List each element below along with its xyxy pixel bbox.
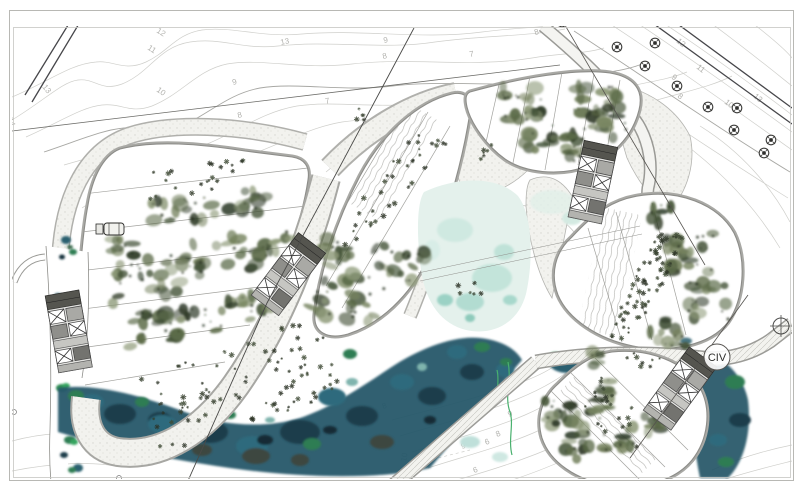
- conifer-symbol-icon: [640, 61, 650, 71]
- conifer-symbol-icon: [759, 148, 769, 158]
- site-plan-sheet: 1413121110981398778986512111310987689869…: [0, 0, 800, 492]
- section-marker-label: CIV: [708, 352, 727, 364]
- conifer-symbol-icon: [729, 125, 739, 135]
- conifer-symbol-icon: [703, 102, 713, 112]
- section-marker-civ: CIV: [704, 344, 730, 370]
- car-symbol: [96, 223, 124, 235]
- conifer-symbol-icon: [672, 81, 682, 91]
- conifer-symbol-icon: [650, 38, 660, 48]
- site-plan-drawing: 1413121110981398778986512111310987689869…: [0, 0, 800, 492]
- conifer-symbol-icon: [732, 103, 742, 113]
- conifer-symbol-icon: [612, 42, 622, 52]
- conifer-symbol-icon: [766, 135, 776, 145]
